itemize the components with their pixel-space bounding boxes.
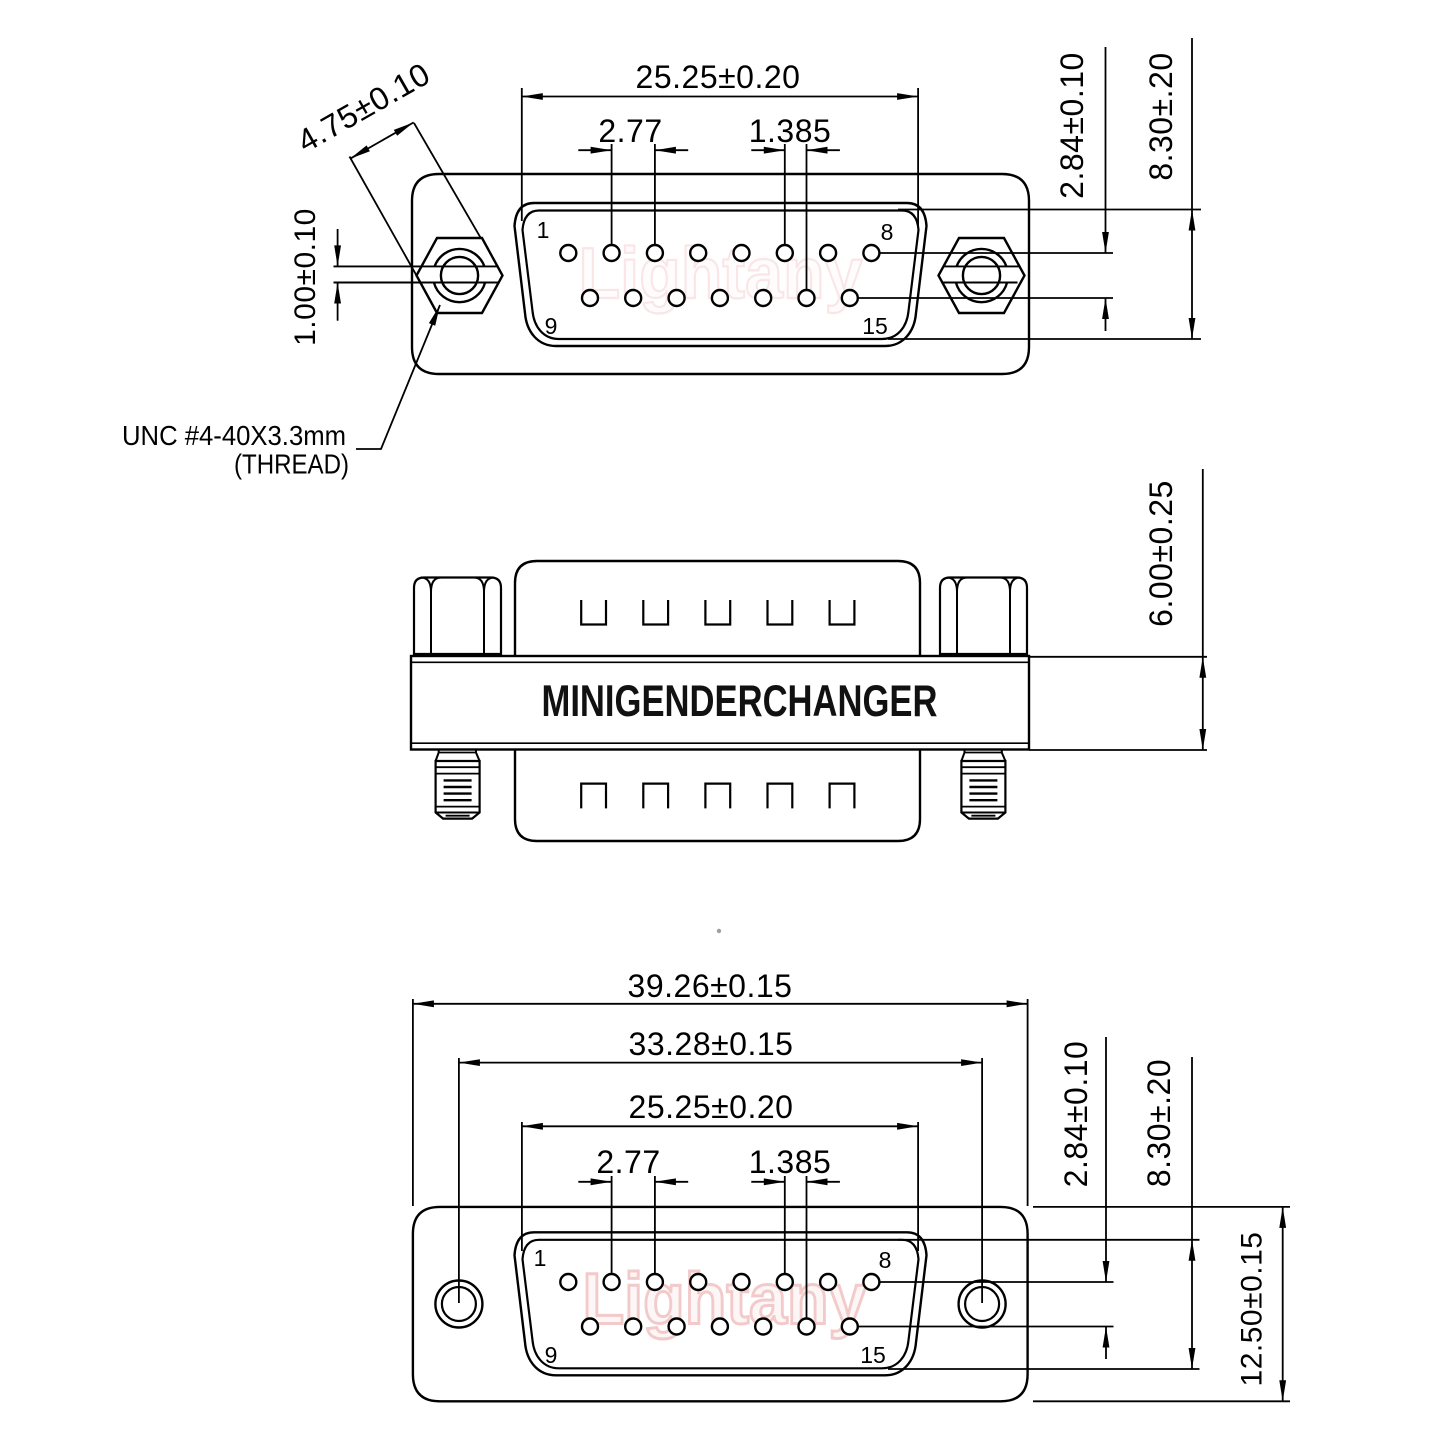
svg-text:2.77: 2.77 <box>598 113 662 149</box>
svg-text:15: 15 <box>862 313 888 339</box>
svg-text:2.84±0.10: 2.84±0.10 <box>1054 52 1090 199</box>
svg-text:15: 15 <box>860 1342 886 1368</box>
svg-text:MINIGENDERCHANGER: MINIGENDERCHANGER <box>542 677 938 726</box>
svg-text:9: 9 <box>545 1342 558 1368</box>
svg-text:33.28±0.15: 33.28±0.15 <box>629 1026 794 1062</box>
svg-text:8: 8 <box>881 219 894 245</box>
svg-text:8.30±.20: 8.30±.20 <box>1143 52 1179 180</box>
svg-text:8: 8 <box>879 1247 892 1273</box>
svg-text:39.26±0.15: 39.26±0.15 <box>628 968 793 1004</box>
svg-text:8.30±.20: 8.30±.20 <box>1141 1059 1177 1187</box>
svg-text:12.50±0.15: 12.50±0.15 <box>1236 1232 1269 1387</box>
svg-text:25.25±0.20: 25.25±0.20 <box>636 59 801 95</box>
svg-text:1.385: 1.385 <box>749 1144 832 1180</box>
svg-text:25.25±0.20: 25.25±0.20 <box>629 1089 794 1125</box>
svg-text:6.00±0.25: 6.00±0.25 <box>1143 480 1179 627</box>
svg-text:2.77: 2.77 <box>596 1144 660 1180</box>
svg-text:1: 1 <box>534 1245 547 1271</box>
svg-text:2.84±0.10: 2.84±0.10 <box>1058 1041 1094 1188</box>
svg-text:(THREAD): (THREAD) <box>234 449 349 480</box>
svg-text:1.385: 1.385 <box>749 113 832 149</box>
svg-text:UNC #4-40X3.3mm: UNC #4-40X3.3mm <box>122 420 346 451</box>
svg-text:9: 9 <box>545 313 558 339</box>
svg-text:1: 1 <box>537 217 550 243</box>
svg-text:1.00±0.10: 1.00±0.10 <box>289 208 322 346</box>
